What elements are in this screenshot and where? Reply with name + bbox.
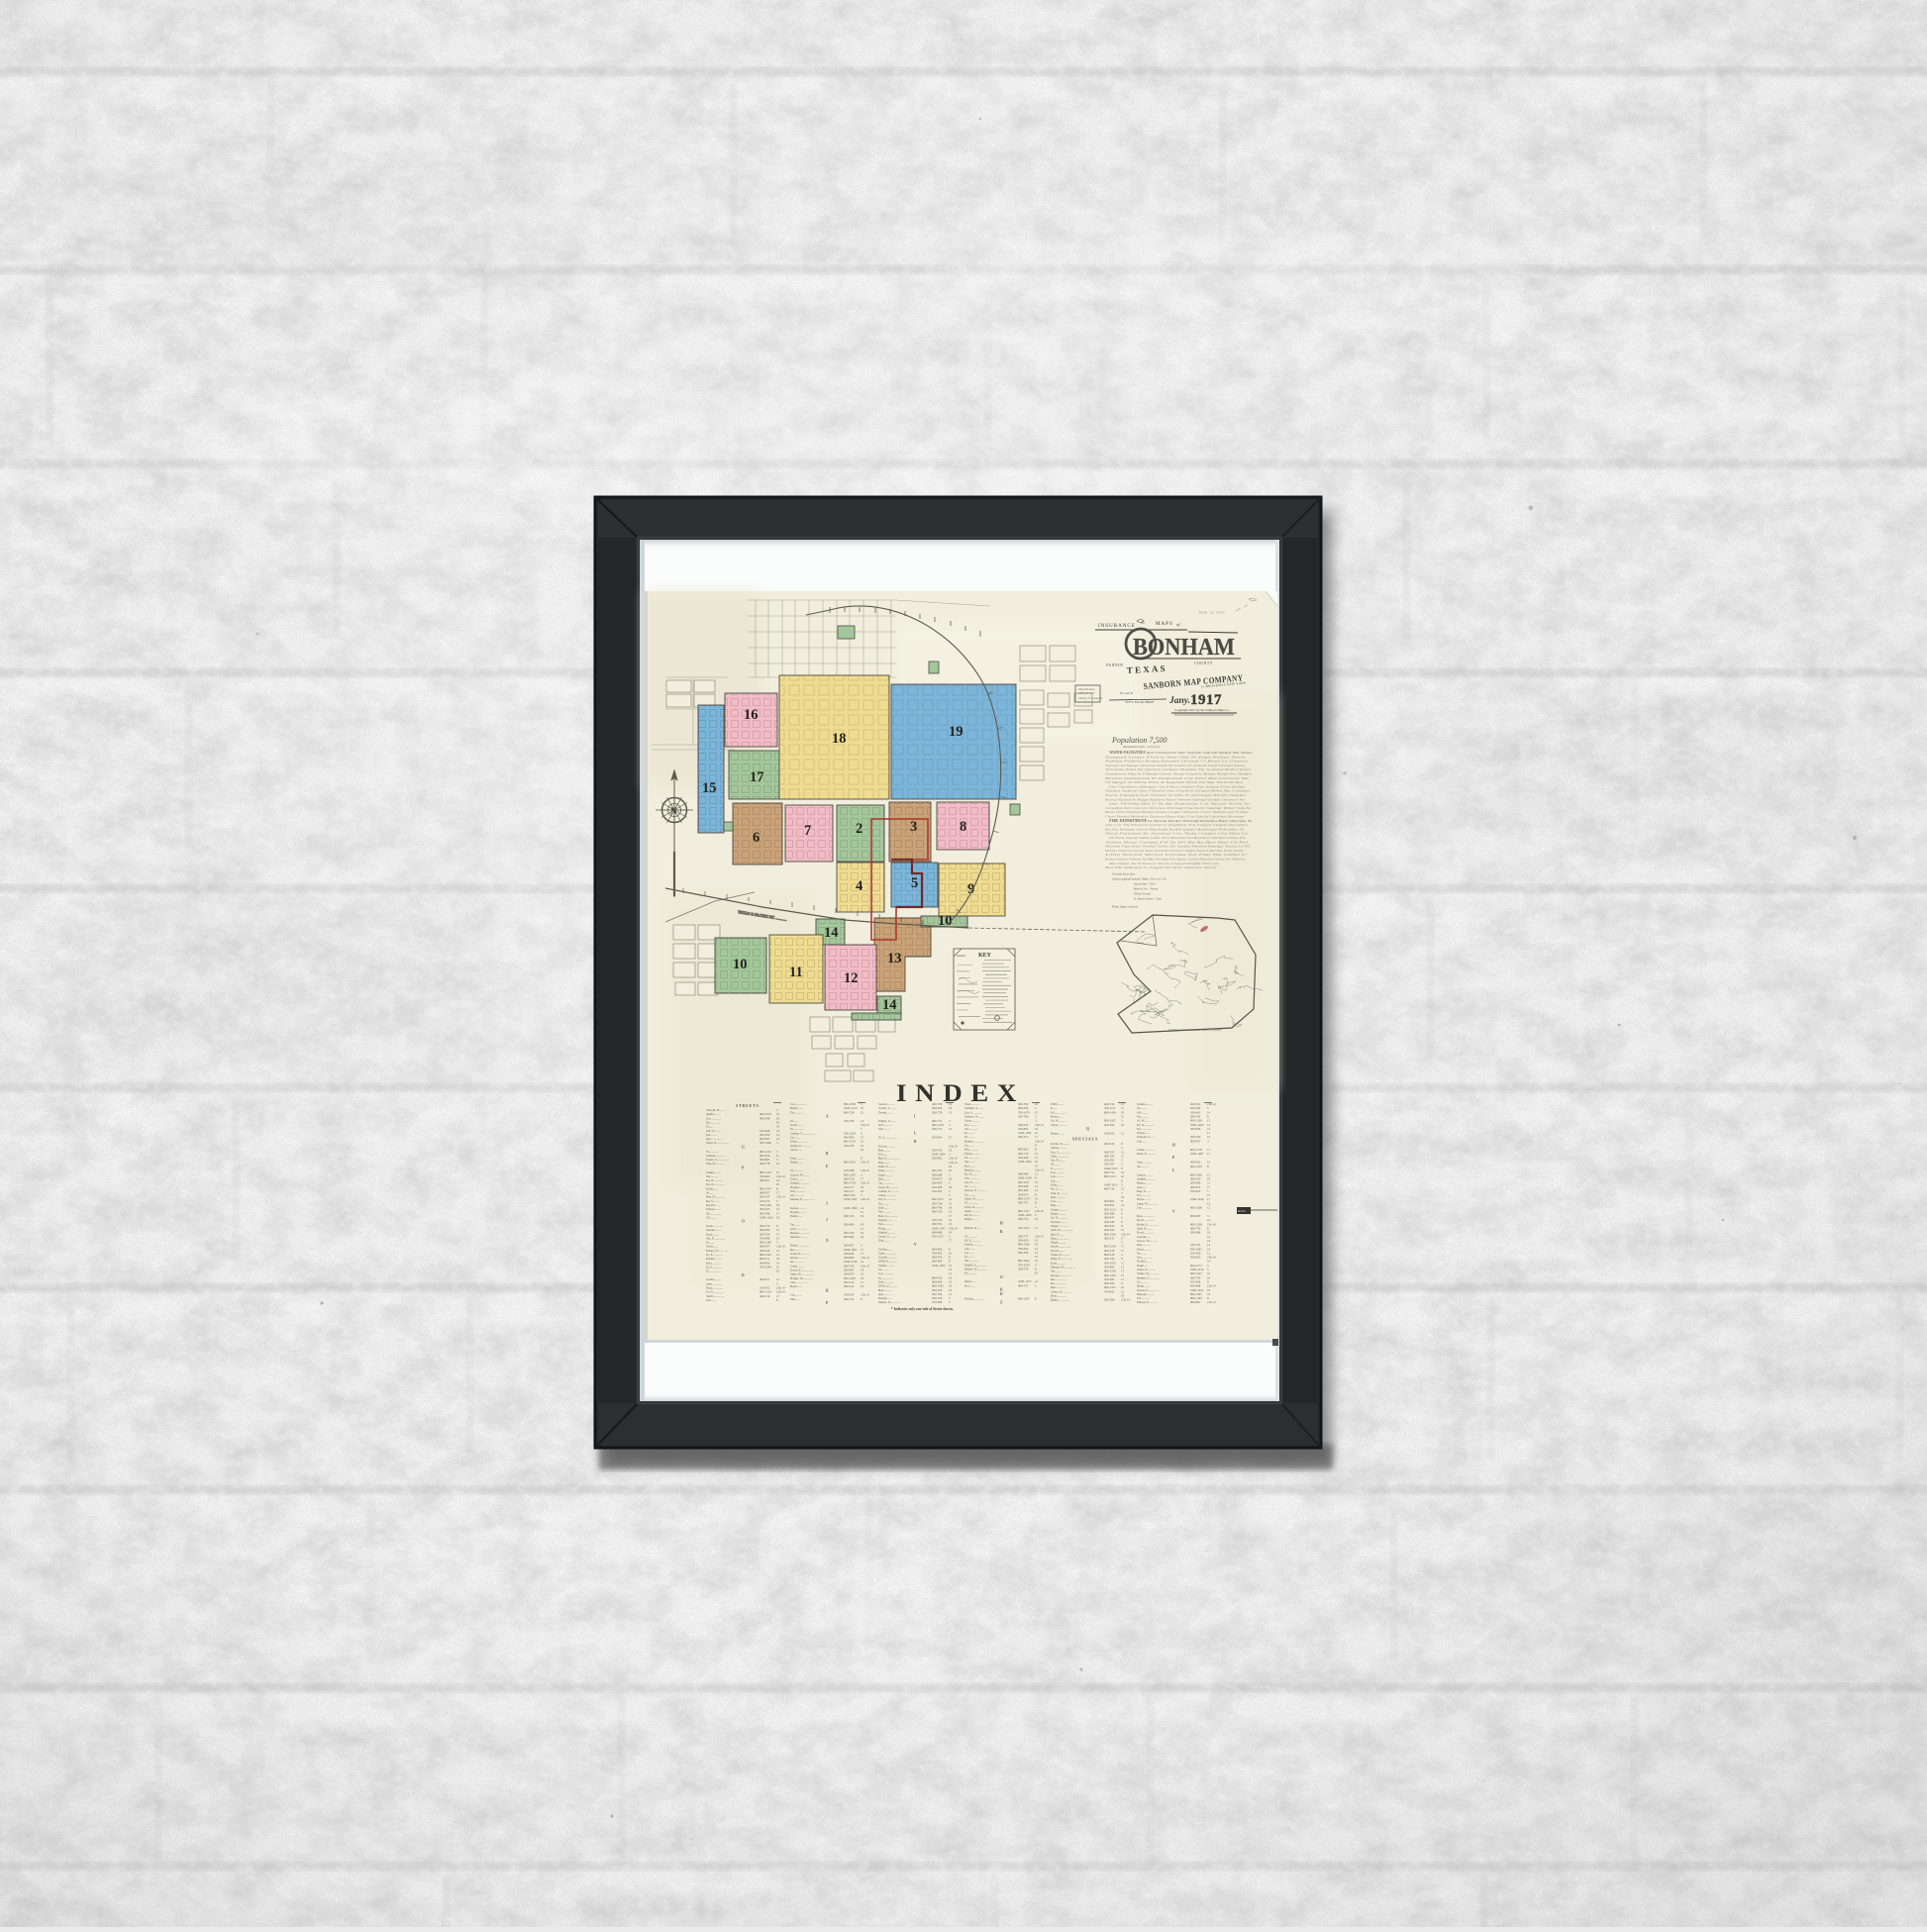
svg-text:Standard: Standard bbox=[957, 955, 966, 958]
svg-text:Bon Ellu Tedenjon Lu Fanpel Ka: Bon Ellu Tedenjon Lu Fanpel Ka Nene Oaki… bbox=[1105, 865, 1218, 869]
svg-text:Jany.: Jany. bbox=[1168, 696, 1190, 706]
svg-text:400-751: 400-751 bbox=[1018, 1201, 1029, 1205]
svg-text:400-545: 400-545 bbox=[1104, 1142, 1115, 1146]
svg-text:200-689: 200-689 bbox=[844, 1223, 855, 1227]
svg-text:Graded forty feet.: Graded forty feet. bbox=[1112, 871, 1136, 875]
svg-text:200-472: 200-472 bbox=[1018, 1135, 1029, 1139]
svg-text:500-998: 500-998 bbox=[1190, 1231, 1201, 1235]
svg-text:400-541: 400-541 bbox=[844, 1284, 855, 1288]
svg-text:19: 19 bbox=[861, 1148, 864, 1152]
svg-text:300-658: 300-658 bbox=[1190, 1127, 1201, 1131]
svg-text:KEY: KEY bbox=[978, 953, 992, 959]
svg-text:Wil...........: Wil........... bbox=[878, 1127, 891, 1131]
svg-text:Hol.......: Hol....... bbox=[964, 1283, 974, 1287]
svg-text:2 & 14: 2 & 14 bbox=[1121, 1298, 1130, 1302]
svg-text:15: 15 bbox=[949, 1136, 953, 1140]
svg-text:12: 12 bbox=[1121, 1131, 1125, 1135]
svg-text:13: 13 bbox=[887, 951, 902, 966]
svg-text:1000-1266: 1000-1266 bbox=[760, 1215, 773, 1219]
svg-text:100-622: 100-622 bbox=[1104, 1131, 1115, 1135]
svg-text:4: 4 bbox=[856, 878, 862, 894]
svg-text:200-662: 200-662 bbox=[932, 1157, 943, 1161]
svg-text:INDEX: INDEX bbox=[896, 1080, 1025, 1107]
svg-text:15: 15 bbox=[949, 1110, 953, 1114]
svg-text:Library of Congress: Library of Congress bbox=[1078, 696, 1103, 700]
svg-text:6: 6 bbox=[753, 830, 760, 846]
svg-text:300-745: 300-745 bbox=[844, 1214, 855, 1218]
svg-text:INSURANCE: INSURANCE bbox=[1098, 623, 1136, 629]
svg-text:500-770: 500-770 bbox=[1018, 1217, 1029, 1221]
svg-text:Elliot School: Elliot School bbox=[1133, 891, 1151, 895]
svg-text:K: K bbox=[1000, 1288, 1003, 1292]
svg-text:200-492: 200-492 bbox=[1104, 1123, 1115, 1127]
svg-text:Wil.......: Wil....... bbox=[706, 1298, 716, 1302]
svg-text:H: H bbox=[1172, 1144, 1175, 1148]
svg-text:J: J bbox=[826, 1218, 828, 1222]
svg-text:Jabon.............: Jabon............. bbox=[1051, 1123, 1067, 1127]
svg-text:D: D bbox=[1000, 1292, 1003, 1296]
svg-text:100-478: 100-478 bbox=[844, 1144, 855, 1148]
svg-text:Oak.........: Oak......... bbox=[878, 1239, 890, 1243]
svg-text:Vicor......: Vicor...... bbox=[790, 1148, 802, 1152]
svg-text:Denja........: Denja........ bbox=[964, 1217, 978, 1221]
svg-text:700-842: 700-842 bbox=[1104, 1289, 1115, 1293]
svg-text:600-982: 600-982 bbox=[844, 1235, 855, 1239]
svg-text:V: V bbox=[1172, 1210, 1175, 1214]
svg-text:700-987: 700-987 bbox=[1190, 1189, 1201, 1193]
svg-text:1917: 1917 bbox=[1190, 692, 1222, 708]
svg-text:900-1206: 900-1206 bbox=[1190, 1206, 1202, 1210]
svg-text:12: 12 bbox=[844, 970, 859, 986]
svg-text:WATER FACILITIES: WATER FACILITIES bbox=[1109, 750, 1146, 755]
svg-text:19: 19 bbox=[861, 1284, 864, 1288]
svg-text:17: 17 bbox=[1035, 1226, 1039, 1230]
svg-text:A: A bbox=[826, 1115, 829, 1119]
svg-text:300-578: 300-578 bbox=[1018, 1268, 1029, 1271]
svg-text:N: N bbox=[670, 806, 677, 816]
svg-text:R: R bbox=[1000, 1230, 1003, 1234]
svg-text:10: 10 bbox=[1035, 1271, 1039, 1275]
svg-text:16: 16 bbox=[744, 707, 759, 723]
svg-text:14: 14 bbox=[861, 1235, 864, 1239]
svg-text:14: 14 bbox=[824, 925, 839, 941]
svg-text:Tesam.........: Tesam......... bbox=[878, 1110, 893, 1114]
svg-text:200-586: 200-586 bbox=[1104, 1298, 1115, 1302]
svg-text:900-1470: 900-1470 bbox=[1190, 1165, 1202, 1169]
svg-text:J: J bbox=[826, 1201, 828, 1205]
svg-text:400-671: 400-671 bbox=[760, 1277, 770, 1281]
svg-text:12: 12 bbox=[861, 1110, 864, 1114]
svg-text:R: R bbox=[826, 1152, 829, 1156]
svg-text:50 FT. TO AN INCH: 50 FT. TO AN INCH bbox=[1125, 700, 1154, 704]
svg-text:800-957: 800-957 bbox=[1190, 1139, 1201, 1143]
svg-text:400-849: 400-849 bbox=[760, 1116, 770, 1120]
svg-text:9: 9 bbox=[967, 881, 974, 897]
svg-text:300-902: 300-902 bbox=[1190, 1256, 1201, 1260]
svg-text:Mosam..........: Mosam.......... bbox=[790, 1235, 807, 1239]
svg-text:BONHAM: BONHAM bbox=[1133, 635, 1235, 661]
svg-text:300-842: 300-842 bbox=[932, 1136, 943, 1140]
svg-text:Q: Q bbox=[1086, 1127, 1089, 1131]
svg-text:2: 2 bbox=[856, 821, 862, 837]
svg-text:Yar..........: Yar.......... bbox=[1137, 1165, 1149, 1169]
svg-text:Bonse........: Bonse........ bbox=[1051, 1131, 1065, 1135]
svg-text:O: O bbox=[1000, 1275, 1003, 1279]
svg-text:400-724: 400-724 bbox=[932, 1210, 943, 1214]
svg-text:300-537: 300-537 bbox=[1104, 1236, 1115, 1240]
svg-text:Rd 25: Rd 25 bbox=[1238, 1209, 1246, 1213]
svg-text:O: O bbox=[742, 1220, 745, 1224]
svg-text:1000-1496: 1000-1496 bbox=[1018, 1160, 1032, 1164]
svg-text:19: 19 bbox=[949, 724, 963, 740]
svg-text:900-1507: 900-1507 bbox=[1018, 1296, 1030, 1300]
svg-text:D: D bbox=[742, 1273, 745, 1277]
svg-text:700-849: 700-849 bbox=[932, 1300, 943, 1304]
svg-text:600-861: 600-861 bbox=[1190, 1300, 1201, 1304]
svg-text:Fif..........: Fif.......... bbox=[706, 1215, 718, 1219]
svg-text:Harris Jor - Street: Harris Jor - Street bbox=[1133, 886, 1158, 890]
svg-text:Ul.............: Ul............. bbox=[706, 1270, 719, 1273]
svg-text:11: 11 bbox=[789, 965, 803, 980]
svg-text:17: 17 bbox=[949, 1239, 953, 1243]
svg-text:700-1271: 700-1271 bbox=[932, 1235, 944, 1239]
svg-text:8: 8 bbox=[960, 819, 966, 835]
svg-text:K: K bbox=[826, 1288, 829, 1292]
svg-text:FANNIN: FANNIN bbox=[1106, 663, 1124, 667]
svg-text:200-396: 200-396 bbox=[1018, 1251, 1029, 1255]
svg-text:10: 10 bbox=[776, 1270, 780, 1273]
svg-text:2 & 14: 2 & 14 bbox=[1207, 1300, 1216, 1304]
svg-text:FANNIN CO. MAP SCALE 1 MILE TO: FANNIN CO. MAP SCALE 1 MILE TO INCH bbox=[1168, 1029, 1221, 1032]
svg-text:G: G bbox=[742, 1145, 745, 1149]
svg-text:500-776: 500-776 bbox=[932, 1110, 943, 1114]
svg-text:MAPS: MAPS bbox=[1156, 621, 1173, 627]
svg-text:800-1105: 800-1105 bbox=[1104, 1174, 1116, 1178]
svg-text:15: 15 bbox=[702, 780, 717, 796]
svg-text:2 & 14: 2 & 14 bbox=[861, 1161, 869, 1165]
svg-text:Quipa...............: Quipa............... bbox=[1051, 1298, 1069, 1302]
svg-text:* Indicates only one side of S: * Indicates only one side of Street show… bbox=[891, 1307, 954, 1311]
svg-text:Pa............: Pa............ bbox=[964, 1271, 977, 1275]
svg-text:Nepel........: Nepel........ bbox=[790, 1161, 804, 1165]
svg-text:Paden......: Paden...... bbox=[790, 1214, 802, 1218]
svg-text:COUNTY: COUNTY bbox=[1194, 661, 1213, 665]
svg-text:FIRE DEPARTMENT: FIRE DEPARTMENT bbox=[1109, 818, 1147, 823]
svg-text:800-1419: 800-1419 bbox=[1104, 1110, 1116, 1114]
svg-text:400-519: 400-519 bbox=[760, 1294, 770, 1298]
svg-text:3: 3 bbox=[910, 819, 917, 835]
svg-text:300-724: 300-724 bbox=[844, 1297, 855, 1301]
svg-text:5: 5 bbox=[911, 875, 918, 891]
svg-text:400-821: 400-821 bbox=[760, 1178, 770, 1182]
svg-text:Population 7,500: Population 7,500 bbox=[1111, 736, 1167, 745]
svg-text:15: 15 bbox=[949, 1127, 953, 1131]
svg-text:800-987: 800-987 bbox=[1190, 1214, 1201, 1218]
svg-text:X: X bbox=[826, 1239, 829, 1243]
svg-text:HSE 14 1917: HSE 14 1917 bbox=[1199, 611, 1225, 615]
svg-text:700-1215: 700-1215 bbox=[1018, 1226, 1030, 1230]
svg-text:12: 12 bbox=[1207, 1206, 1211, 1210]
svg-text:Bonu.......: Bonu....... bbox=[790, 1284, 802, 1288]
svg-text:Plain lights electric.: Plain lights electric. bbox=[1111, 904, 1139, 908]
svg-text:10: 10 bbox=[733, 957, 748, 972]
svg-text:APR 16 1917: APR 16 1917 bbox=[1078, 691, 1095, 695]
svg-text:800-1024: 800-1024 bbox=[844, 1161, 856, 1165]
svg-text:400-757: 400-757 bbox=[1018, 1283, 1029, 1287]
svg-text:10: 10 bbox=[776, 1215, 780, 1219]
svg-text:Sarah Ave - Elm: Sarah Ave - Elm bbox=[1134, 881, 1156, 885]
svg-text:200-768: 200-768 bbox=[1018, 1115, 1029, 1119]
svg-text:SCALE: SCALE bbox=[1120, 691, 1134, 695]
svg-text:V: V bbox=[914, 1243, 917, 1247]
svg-text:15: 15 bbox=[1207, 1152, 1211, 1156]
svg-text:Copyright 1917 by the Sanborn: Copyright 1917 by the Sanborn Map Co. bbox=[1174, 708, 1230, 712]
svg-text:E. Annie Stone - Oak: E. Annie Stone - Oak bbox=[1133, 896, 1162, 900]
svg-text:Peloak...............: Peloak............... bbox=[964, 1296, 984, 1300]
svg-text:SPECIALS: SPECIALS bbox=[1072, 1137, 1098, 1142]
svg-text:2 & 14: 2 & 14 bbox=[861, 1197, 869, 1201]
svg-text:14: 14 bbox=[1035, 1217, 1039, 1221]
svg-text:Mar.......: Mar....... bbox=[790, 1297, 801, 1301]
svg-text:1000-1395: 1000-1395 bbox=[932, 1264, 946, 1268]
svg-text:600-714: 600-714 bbox=[1104, 1187, 1115, 1191]
svg-text:200-572: 200-572 bbox=[932, 1127, 943, 1131]
svg-text:100-295: 100-295 bbox=[932, 1189, 943, 1193]
svg-text:10: 10 bbox=[776, 1162, 780, 1166]
svg-text:600-728: 600-728 bbox=[844, 1110, 855, 1114]
svg-text:1000-1487: 1000-1487 bbox=[1190, 1152, 1204, 1156]
svg-text:18: 18 bbox=[832, 731, 847, 747]
svg-text:100-709: 100-709 bbox=[844, 1119, 855, 1123]
svg-text:H: H bbox=[1000, 1221, 1003, 1225]
svg-text:Cen.............: Cen............. bbox=[1137, 1206, 1152, 1210]
svg-text:1000-1440: 1000-1440 bbox=[1190, 1197, 1204, 1201]
svg-text:14: 14 bbox=[882, 997, 897, 1013]
svg-text:Che......: Che...... bbox=[1137, 1139, 1147, 1143]
svg-text:500-778: 500-778 bbox=[760, 1162, 770, 1166]
svg-text:1000-1580: 1000-1580 bbox=[844, 1206, 858, 1210]
svg-text:17: 17 bbox=[750, 769, 764, 785]
svg-text:500-1096: 500-1096 bbox=[760, 1141, 771, 1145]
svg-text:STREETS: STREETS bbox=[736, 1103, 760, 1108]
svg-text:(Residential limits - 2 mi sq: (Residential limits - 2 mi sq W) bbox=[1123, 745, 1160, 749]
svg-text:1000-1502: 1000-1502 bbox=[844, 1197, 858, 1201]
svg-text:700-1198: 700-1198 bbox=[760, 1266, 771, 1270]
svg-text:Tor............: Tor............ bbox=[790, 1110, 804, 1114]
svg-text:7: 7 bbox=[804, 823, 811, 839]
svg-text:19: 19 bbox=[861, 1214, 864, 1218]
svg-text:19: 19 bbox=[1121, 1123, 1125, 1127]
